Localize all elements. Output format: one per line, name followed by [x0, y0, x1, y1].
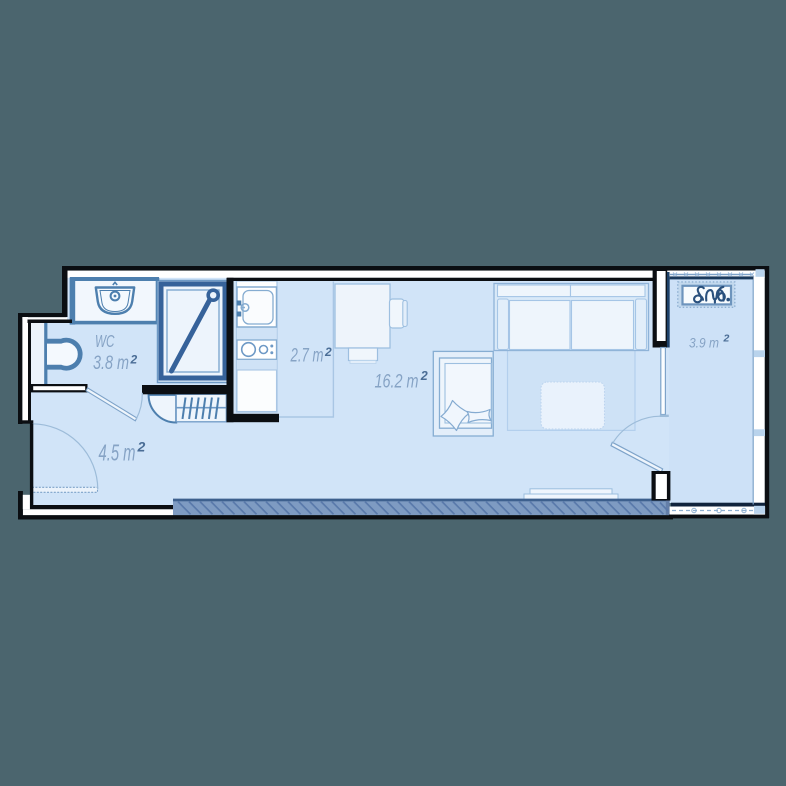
svg-text:2: 2 — [723, 333, 730, 345]
svg-text:2: 2 — [420, 369, 428, 383]
svg-text:WC: WC — [95, 331, 115, 351]
svg-text:4.5 m: 4.5 m — [99, 440, 136, 466]
svg-text:2.7 m: 2.7 m — [290, 346, 324, 367]
svg-text:2: 2 — [137, 439, 146, 455]
svg-text:3.8 m: 3.8 m — [93, 353, 129, 374]
svg-text:2: 2 — [130, 353, 138, 367]
svg-text:2: 2 — [324, 345, 332, 359]
svg-text:16.2 m: 16.2 m — [375, 372, 419, 393]
svg-text:3.9 m: 3.9 m — [689, 335, 719, 351]
